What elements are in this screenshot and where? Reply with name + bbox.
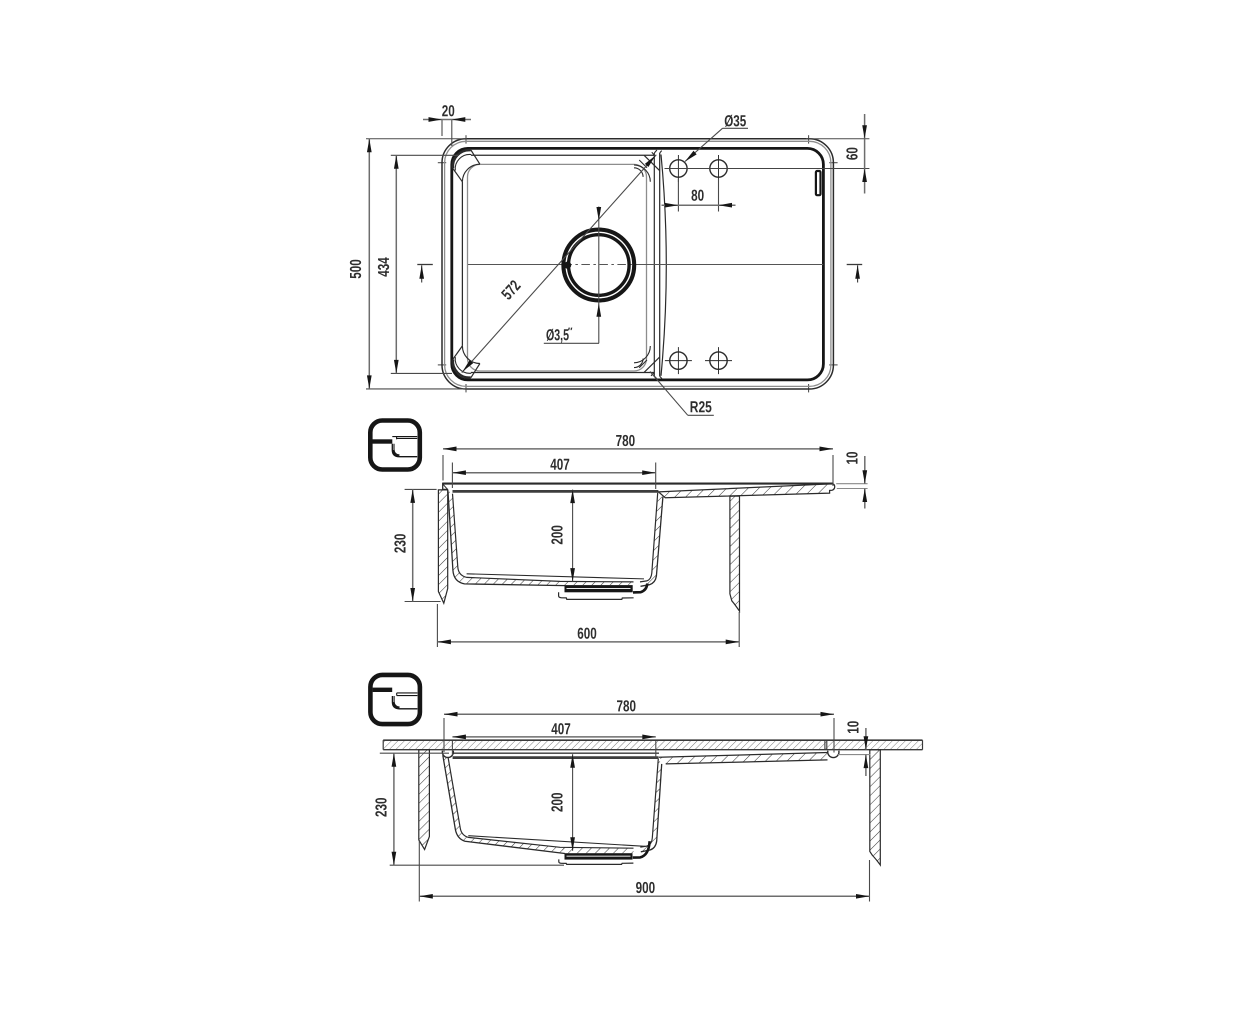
- svg-text:60: 60: [844, 147, 861, 160]
- svg-text:230: 230: [392, 534, 409, 554]
- svg-text:434: 434: [376, 257, 393, 277]
- svg-text:200: 200: [549, 792, 566, 812]
- svg-text:230: 230: [373, 797, 390, 817]
- svg-text:500: 500: [348, 259, 365, 279]
- svg-text:″: ″: [568, 327, 573, 338]
- svg-text:600: 600: [577, 626, 597, 643]
- svg-text:780: 780: [616, 433, 636, 450]
- svg-text:R25: R25: [690, 399, 712, 416]
- svg-text:Ø3,5: Ø3,5: [546, 327, 569, 344]
- svg-text:780: 780: [616, 698, 636, 715]
- svg-text:10: 10: [845, 451, 862, 464]
- svg-text:900: 900: [636, 880, 656, 897]
- svg-text:200: 200: [550, 525, 567, 545]
- svg-text:80: 80: [691, 188, 704, 205]
- svg-text:Ø35: Ø35: [724, 113, 746, 130]
- svg-text:407: 407: [551, 721, 571, 738]
- svg-text:407: 407: [550, 457, 570, 474]
- svg-text:10: 10: [845, 721, 862, 734]
- svg-text:20: 20: [442, 103, 455, 120]
